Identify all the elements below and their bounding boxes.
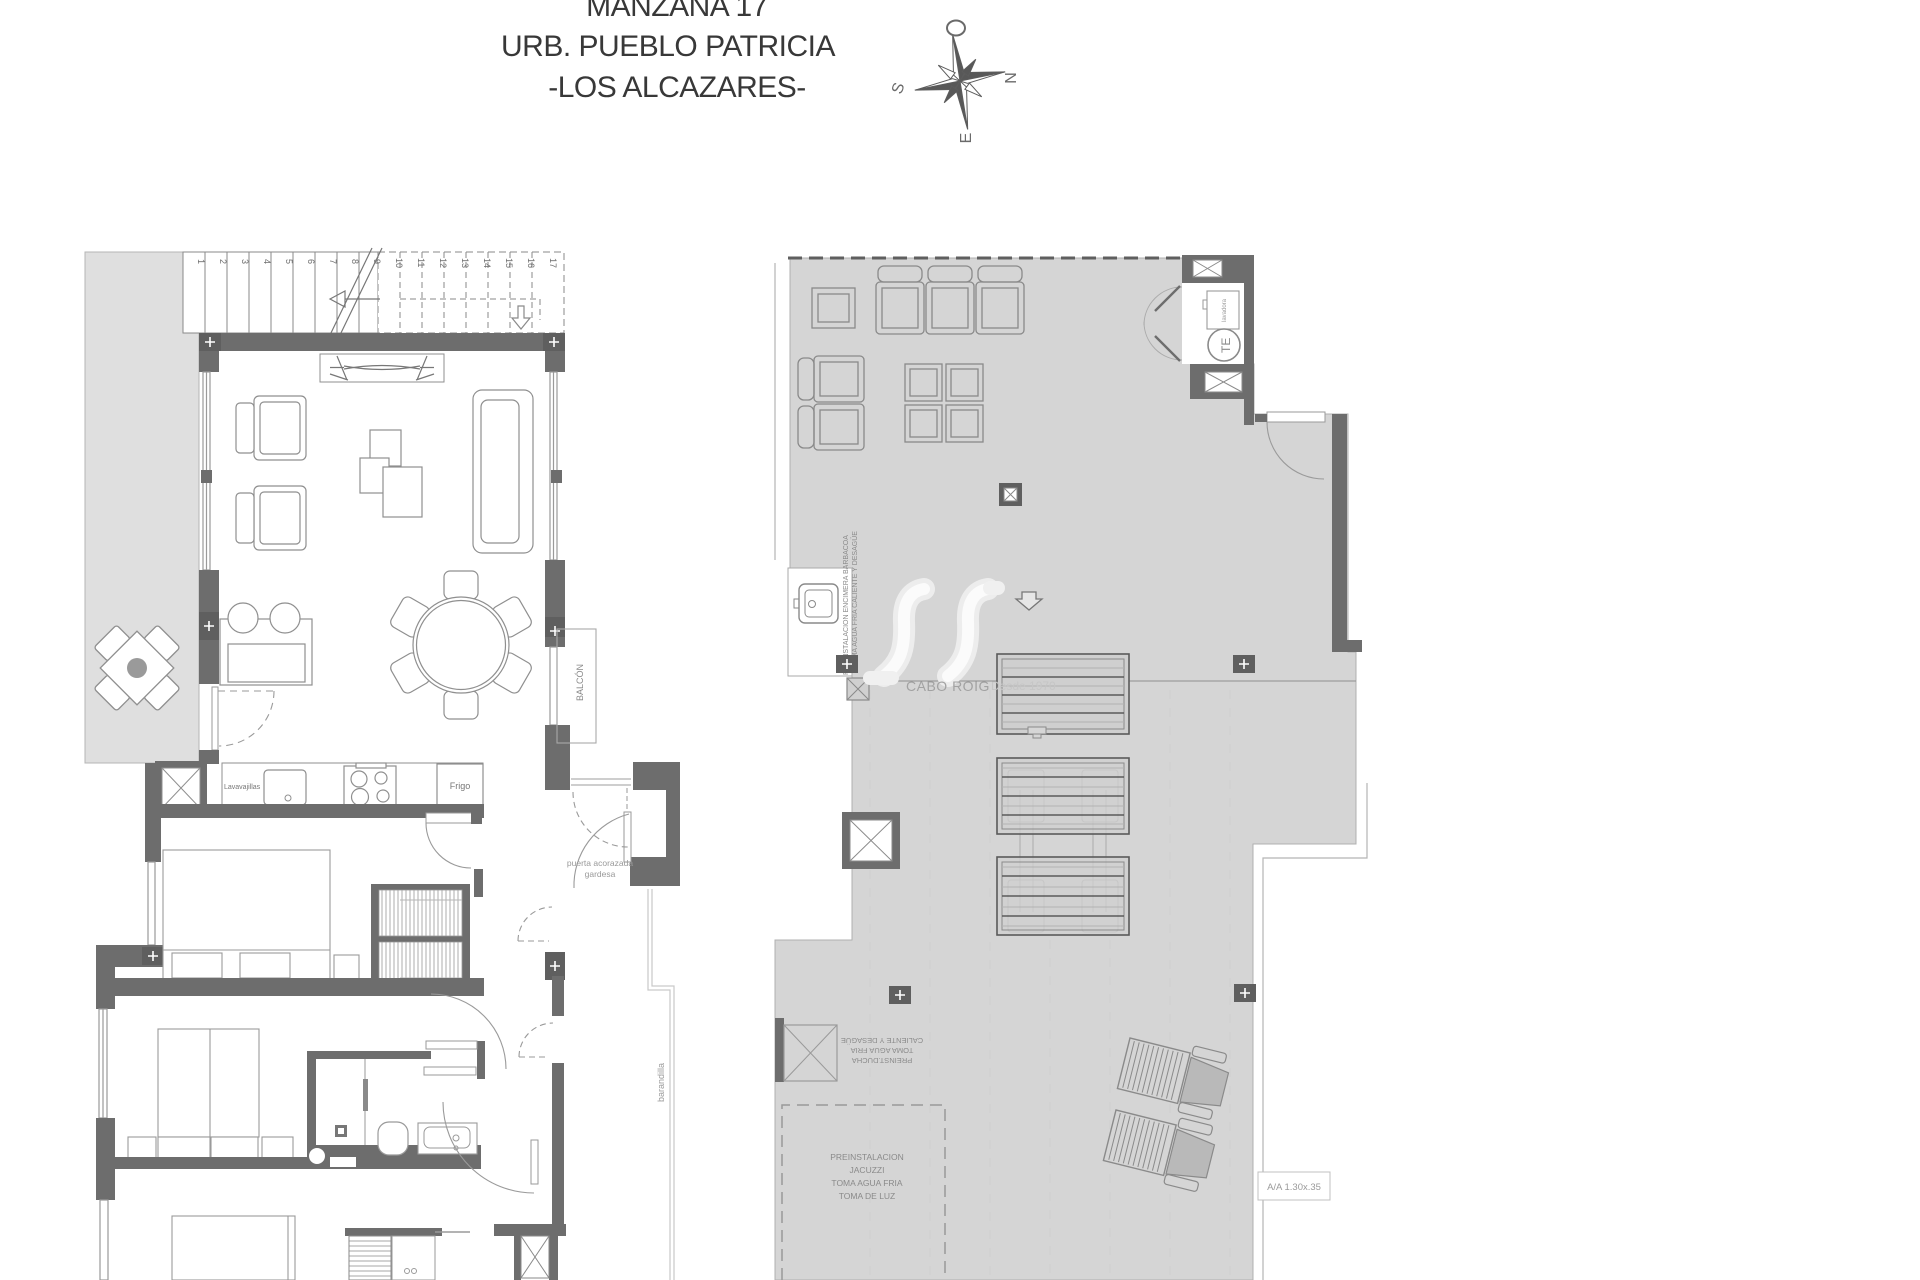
- svg-text:5: 5: [284, 259, 294, 264]
- svg-text:barandilla: barandilla: [656, 1063, 666, 1102]
- svg-text:MANZANA 17: MANZANA 17: [586, 0, 768, 23]
- svg-text:10: 10: [394, 258, 404, 268]
- svg-text:Desde 1970: Desde 1970: [991, 679, 1056, 693]
- svg-text:-LOS ALCAZARES-: -LOS ALCAZARES-: [548, 71, 806, 104]
- svg-text:13: 13: [460, 258, 470, 268]
- svg-text:JACUZZI: JACUZZI: [850, 1165, 885, 1175]
- svg-text:TOMA DE LUZ: TOMA DE LUZ: [839, 1191, 896, 1201]
- svg-text:PREINST.DUCHA: PREINST.DUCHA: [852, 1056, 912, 1065]
- svg-text:Frigo: Frigo: [450, 781, 471, 791]
- svg-text:8: 8: [350, 259, 360, 264]
- svg-text:BALCÓN: BALCÓN: [575, 664, 585, 701]
- svg-text:E: E: [958, 133, 975, 144]
- svg-text:TOMA AGUA FRIA CALIENTE Y DESA: TOMA AGUA FRIA CALIENTE Y DESAGÜE: [851, 531, 859, 668]
- svg-text:TOMA AGUA FRIA: TOMA AGUA FRIA: [851, 1046, 914, 1055]
- svg-text:TE: TE: [1219, 338, 1233, 353]
- svg-text:PREINSTALACION: PREINSTALACION: [830, 1152, 904, 1162]
- svg-text:14: 14: [482, 258, 492, 268]
- svg-text:1: 1: [196, 259, 206, 264]
- svg-text:15: 15: [504, 258, 514, 268]
- svg-text:N: N: [1003, 72, 1020, 84]
- svg-text:puerta acorazada: puerta acorazada: [567, 858, 633, 868]
- svg-text:4: 4: [262, 259, 272, 264]
- svg-text:Lavavajillas: Lavavajillas: [224, 784, 261, 791]
- svg-text:3: 3: [240, 259, 250, 264]
- svg-text:URB. PUEBLO PATRICIA: URB. PUEBLO PATRICIA: [501, 30, 835, 63]
- svg-text:17: 17: [548, 258, 558, 268]
- svg-text:2: 2: [218, 259, 228, 264]
- svg-text:7: 7: [328, 259, 338, 264]
- svg-text:16: 16: [526, 258, 536, 268]
- svg-text:gardesa: gardesa: [585, 869, 616, 879]
- svg-text:11: 11: [416, 258, 426, 267]
- svg-text:CALIENTE Y DESAGÜE: CALIENTE Y DESAGÜE: [841, 1036, 923, 1045]
- svg-text:A/A 1.30x.35: A/A 1.30x.35: [1267, 1182, 1321, 1193]
- svg-text:lavadora: lavadora: [1222, 298, 1228, 322]
- svg-text:CABO ROIG: CABO ROIG: [906, 678, 990, 694]
- svg-text:12: 12: [438, 258, 448, 268]
- svg-text:9: 9: [372, 259, 382, 264]
- svg-text:TOMA AGUA FRIA: TOMA AGUA FRIA: [831, 1178, 902, 1188]
- svg-text:PREINSTALACION ENCIMERA BARBAC: PREINSTALACION ENCIMERA BARBACOA: [843, 535, 850, 675]
- svg-text:6: 6: [306, 259, 316, 264]
